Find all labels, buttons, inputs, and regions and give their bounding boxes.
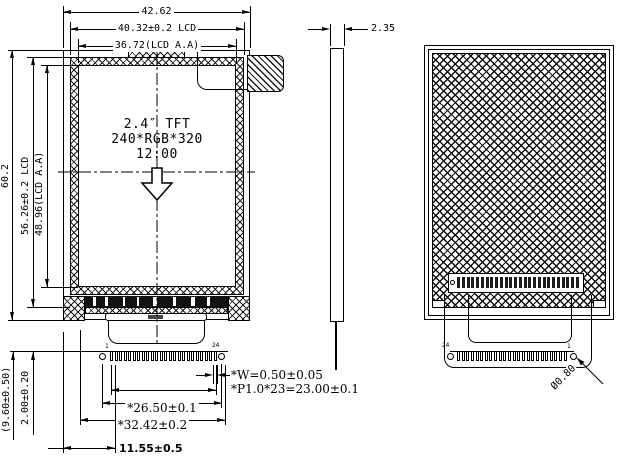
front-center-text: 2.4″ TFT 240*RGB*320 12:00 bbox=[95, 117, 219, 162]
lcd-module-outline-drawing: 1 24 24 1 2.4″ TFT 240*RGB*320 12:00 bbox=[0, 0, 620, 461]
resolution-label: 240*RGB*320 bbox=[95, 132, 219, 147]
viewing-direction-label: 12:00 bbox=[95, 147, 219, 162]
viewing-direction-arrow-icon bbox=[139, 167, 175, 202]
panel-size-label: 2.4″ TFT bbox=[95, 117, 219, 132]
